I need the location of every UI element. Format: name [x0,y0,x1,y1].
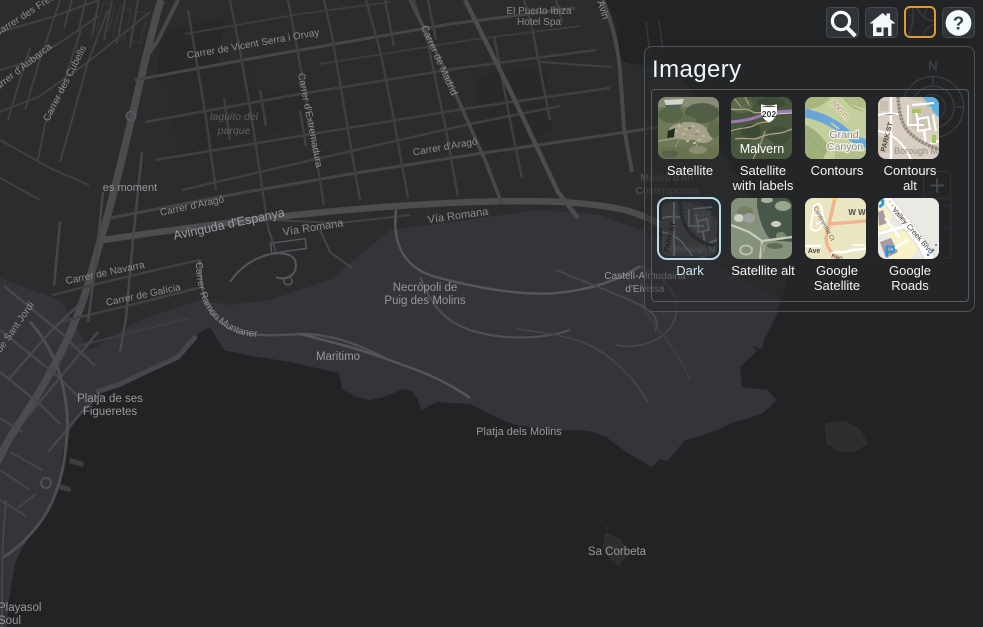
svg-text:P: P [884,242,895,259]
svg-text:Borough M: Borough M [894,146,938,156]
svg-text:Platja dels Molins: Platja dels Molins [476,426,562,438]
svg-text:parque: parque [217,125,251,137]
svg-text:Canyon: Canyon [827,141,863,153]
svg-text:Maritimo: Maritimo [316,351,360,363]
svg-text:laguito del: laguito del [210,111,259,123]
svg-text:Figueretes: Figueretes [83,406,138,418]
svg-text:Malvern: Malvern [740,142,785,156]
svg-text:Soul: Soul [0,615,21,627]
svg-text:Playasol: Playasol [0,602,41,614]
svg-text:Platja de ses: Platja de ses [77,393,143,405]
svg-text:Ave: Ave [808,248,821,255]
svg-text:Grand: Grand [829,129,858,141]
svg-text:?: ? [953,13,964,34]
svg-text:Borough M: Borough M [674,244,716,254]
svg-text:Necròpoli de: Necròpoli de [393,282,458,294]
svg-text:El Puerto Ibiza: El Puerto Ibiza [506,6,571,17]
svg-text:Hotel Spa: Hotel Spa [517,17,561,28]
svg-text:W W: W W [848,208,866,217]
svg-text:Puig des Molins: Puig des Molins [384,295,465,307]
svg-text:Sa Corbeta: Sa Corbeta [588,546,647,558]
svg-text:es moment: es moment [103,182,157,194]
svg-text:202: 202 [762,109,776,119]
